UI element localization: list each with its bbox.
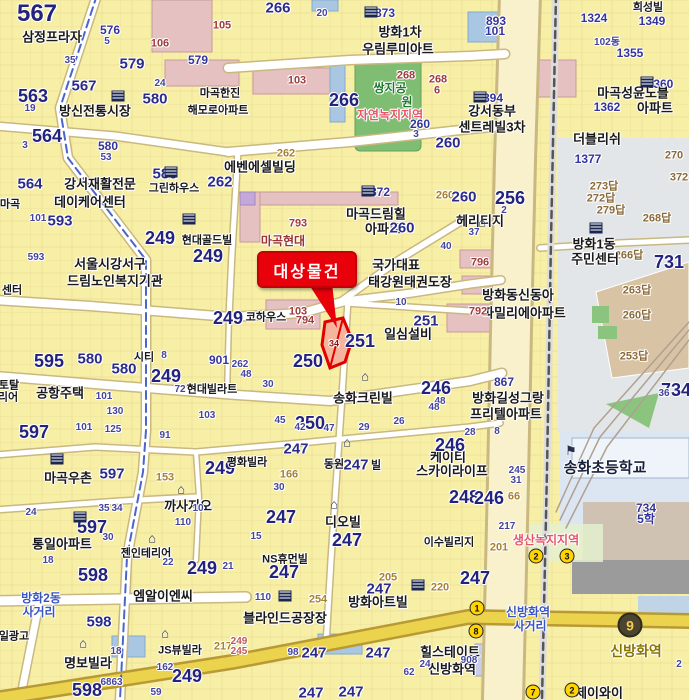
map-label: 792 xyxy=(469,307,487,318)
map-label: 동원 xyxy=(324,460,344,471)
map-label: 867 xyxy=(494,376,514,388)
map-label: 신방화역 xyxy=(506,606,550,618)
map-label: 130 xyxy=(107,407,124,417)
map-label: 센터 xyxy=(2,286,22,297)
subway-exit-badge: 1 xyxy=(470,601,485,616)
map-label: 방화동신동아 xyxy=(482,289,554,302)
map-label: 220 xyxy=(431,583,449,594)
map-label: 246 xyxy=(435,436,465,454)
map-label: 37 xyxy=(468,228,479,238)
map-label: 국가대표 xyxy=(372,259,420,272)
map-label: 260답 xyxy=(623,311,651,322)
map-label: 593 xyxy=(28,253,45,263)
map-canvas[interactable]: 대상물건 9 567삼정프라자5765351061055795795675631… xyxy=(0,0,689,700)
map-label: 송화초등학교 xyxy=(564,461,647,476)
map-label: 98 xyxy=(287,648,298,658)
map-label: 598 xyxy=(78,566,108,584)
map-label: 마곡성윤노블 xyxy=(597,87,669,100)
building-icon xyxy=(412,580,425,591)
map-label: 통일아파트 xyxy=(32,538,92,551)
map-label: 260 xyxy=(389,221,414,236)
map-label: 5 xyxy=(104,37,110,47)
map-label: 101 xyxy=(485,25,505,37)
map-label: 스카이라이프 xyxy=(416,465,488,478)
subway-exit-badge: 3 xyxy=(560,549,575,564)
map-label: 삼정프라자 xyxy=(22,31,82,44)
map-label: 598 xyxy=(72,681,102,699)
map-label: 48 xyxy=(240,370,251,380)
subway-exit-badge: 2 xyxy=(565,683,580,698)
map-label: 110 xyxy=(255,593,271,603)
map-label: 파밀리에아파트 xyxy=(482,307,566,320)
map-label: 34 xyxy=(111,504,122,514)
map-label: 디오빌 xyxy=(325,516,361,529)
map-label: 262 xyxy=(207,175,232,190)
map-label: 송화크린빌 xyxy=(333,392,393,405)
map-label: 42 xyxy=(294,423,305,433)
map-label: 796 xyxy=(471,258,489,269)
map-label: 태강원태권도장 xyxy=(368,276,452,289)
map-label: 34 xyxy=(329,340,339,349)
map-label: 10 xyxy=(395,298,406,308)
map-label: 268답 xyxy=(643,214,671,225)
map-label: 45 xyxy=(274,416,285,426)
map-label: 서울시강서구 xyxy=(74,258,146,271)
map-label: 1349 xyxy=(639,15,666,27)
map-label: 247 xyxy=(269,563,299,581)
building-icon xyxy=(51,454,64,465)
map-label: 프리텔아파트 xyxy=(470,408,542,421)
map-label: 48 xyxy=(428,403,439,413)
map-label: 제이와이 xyxy=(575,687,623,700)
map-label: 코하우스 xyxy=(246,313,286,324)
map-label: 토탈 xyxy=(0,381,19,392)
building-icon xyxy=(165,167,178,178)
subway-exit-badge: 7 xyxy=(526,685,541,700)
map-label: 103 xyxy=(199,411,216,421)
map-label: 597 xyxy=(19,423,49,441)
map-label: 강서동부 xyxy=(468,105,516,118)
map-label: 247 xyxy=(343,458,368,473)
map-label: 30 xyxy=(102,533,113,543)
map-label: 251 xyxy=(345,332,375,350)
map-label: 21 xyxy=(222,562,233,572)
map-label: 247 xyxy=(365,646,390,661)
map-label: 593 xyxy=(47,214,72,229)
map-label: 8 xyxy=(494,427,500,437)
map-label: 3 xyxy=(22,141,28,151)
map-label: 아파트 xyxy=(637,102,673,115)
map-label: 원 xyxy=(401,96,412,108)
map-label: 24 xyxy=(154,79,165,89)
map-label: 247 xyxy=(460,569,490,587)
map-label: 249 xyxy=(145,229,175,247)
map-label: 마곡우촌 xyxy=(44,472,92,485)
map-label: 251 xyxy=(413,314,438,329)
house-icon: ⌂ xyxy=(148,531,156,546)
map-label: 10 xyxy=(192,504,203,514)
map-label: 사거리 xyxy=(513,620,546,632)
map-label: 해모로아파트 xyxy=(188,106,249,117)
map-label: 249 xyxy=(187,559,217,577)
map-label: 리어 xyxy=(0,393,18,404)
map-label: 30 xyxy=(262,380,273,390)
map-label: 793 xyxy=(289,219,307,230)
map-label: 272답 xyxy=(587,194,615,205)
map-label: 현대골드빌 xyxy=(182,236,233,247)
map-label: 강서재활전문 xyxy=(64,178,136,191)
map-label: 246 xyxy=(474,489,504,507)
map-label: 26 xyxy=(393,417,404,427)
house-icon: ⌂ xyxy=(330,497,338,512)
map-label: 15 xyxy=(250,532,261,542)
map-label: 106 xyxy=(151,39,169,50)
map-label: 평화빌라 xyxy=(227,458,267,469)
map-label: JS뷰빌라 xyxy=(158,646,202,657)
map-label: 사거리 xyxy=(22,606,55,618)
map-label: 8 xyxy=(161,351,167,361)
map-label: 245 xyxy=(231,647,248,657)
map-label: 방화길성그랑 xyxy=(472,392,544,405)
map-label: 217 xyxy=(499,522,516,532)
building-icon xyxy=(590,223,603,234)
house-icon: ⌂ xyxy=(361,369,369,384)
map-label: 쌍지공 xyxy=(373,82,406,94)
map-label: 254 xyxy=(309,595,327,606)
building-icon xyxy=(183,214,196,225)
map-label: 372 xyxy=(670,173,688,184)
map-label: 일광고 xyxy=(0,632,29,643)
map-label: 873 xyxy=(375,7,395,19)
map-label: 우림루미아트 xyxy=(362,43,434,56)
map-label: 68 xyxy=(100,678,111,688)
map-label: 580 xyxy=(77,352,102,367)
map-label: 47 xyxy=(323,424,334,434)
map-label: 266 xyxy=(265,1,290,16)
map-labels-layer: 567삼정프라자5765351061055795795675631924580방… xyxy=(0,0,689,700)
map-label: 31 xyxy=(510,476,521,486)
map-label: 2 xyxy=(676,660,682,670)
map-label: 567 xyxy=(71,79,96,94)
map-label: 901 xyxy=(209,354,229,366)
map-label: 247 xyxy=(332,531,362,549)
map-label: 268 xyxy=(397,71,415,82)
house-icon: ⌂ xyxy=(161,626,169,641)
school-flag-icon: ⚑ xyxy=(565,443,577,459)
map-label: 데이케어센터 xyxy=(54,196,126,209)
map-label: 엠알이엔씨 xyxy=(133,590,193,603)
subway-exit-badge: 8 xyxy=(469,624,484,639)
map-label: 29 xyxy=(358,423,369,433)
house-icon: ⌂ xyxy=(177,482,185,497)
map-label: 6 xyxy=(434,86,440,97)
map-label: 1377 xyxy=(575,153,602,165)
map-label: 101 xyxy=(96,392,113,402)
map-label: 794 xyxy=(296,316,314,327)
map-label: 드림노인복지기관 xyxy=(67,275,163,288)
map-label: 103 xyxy=(288,76,306,87)
map-label: 110 xyxy=(175,518,191,528)
map-label: 28 xyxy=(464,428,475,438)
map-label: 생산녹지지역 xyxy=(513,534,579,546)
map-label: 731 xyxy=(654,253,684,271)
map-label: 580 xyxy=(111,362,136,377)
map-label: 598 xyxy=(86,615,111,630)
map-label: 희성빌 xyxy=(633,3,663,14)
map-label: 246 xyxy=(421,379,451,397)
building-icon xyxy=(474,92,487,103)
map-label: 방화1동 xyxy=(572,238,615,251)
map-label: 블라인드공장장 xyxy=(243,612,327,625)
map-label: 2 xyxy=(501,206,507,216)
map-label: 249 xyxy=(151,367,181,385)
map-label: 방신전통시장 xyxy=(59,105,131,118)
map-label: 249 xyxy=(172,667,202,685)
map-label: 센트레빌3차 xyxy=(458,121,525,134)
map-label: 35 xyxy=(64,56,75,66)
map-label: 580 xyxy=(98,140,118,152)
map-label: 53 xyxy=(100,153,111,163)
house-icon: ⌂ xyxy=(343,435,351,450)
map-label: 마곡현대 xyxy=(261,235,305,247)
map-label: 19 xyxy=(24,104,35,114)
map-label: 59 xyxy=(150,688,161,698)
map-label: 270 xyxy=(665,151,683,162)
map-label: 더블리쉬 xyxy=(573,133,621,146)
map-label: 576 xyxy=(100,24,120,36)
map-label: 256 xyxy=(495,189,525,207)
map-label: 그린하우스 xyxy=(149,184,200,195)
map-label: 273답 xyxy=(590,182,618,193)
map-label: 24 xyxy=(25,508,36,518)
map-label: 263답 xyxy=(623,286,651,297)
map-label: 마곡 xyxy=(0,200,20,211)
building-icon xyxy=(279,591,292,602)
map-label: 260 xyxy=(435,136,460,151)
map-label: 101 xyxy=(76,423,93,433)
map-label: 91 xyxy=(159,431,170,441)
map-label: 201 xyxy=(490,543,508,554)
map-label: 공항주택 xyxy=(36,387,84,400)
map-label: 567 xyxy=(17,2,57,26)
map-label: 40 xyxy=(440,242,451,252)
station-name: 신방화역 xyxy=(610,644,662,658)
map-label: 250 xyxy=(293,352,323,370)
map-label: 253답 xyxy=(620,352,648,363)
map-label: 564 xyxy=(32,127,62,145)
map-label: 방화2동 xyxy=(21,592,61,604)
map-label: 1324 xyxy=(581,12,608,24)
map-label: 3 xyxy=(413,130,419,140)
map-label: 247 xyxy=(266,508,296,526)
map-label: 597 xyxy=(99,467,124,482)
map-label: 에벤에셀빌딩 xyxy=(224,161,296,174)
map-label: 20 xyxy=(316,9,327,19)
subway-exit-badge: 2 xyxy=(529,549,544,564)
map-label: 시티 xyxy=(134,353,154,364)
map-label: 166 xyxy=(280,470,298,481)
map-label: 153 xyxy=(156,473,174,484)
building-icon xyxy=(365,7,378,18)
map-label: 249 xyxy=(213,309,243,327)
building-icon xyxy=(641,77,654,88)
map-label: 101 xyxy=(30,214,47,224)
map-label: 279답 xyxy=(597,206,625,217)
building-icon xyxy=(362,186,375,197)
map-label: 266 xyxy=(329,91,359,109)
map-label: 18 xyxy=(110,647,121,657)
map-label: 빌 xyxy=(371,461,381,472)
map-label: 63 xyxy=(111,678,122,688)
map-label: 까사지오 xyxy=(164,500,212,513)
map-label: 방화1차 xyxy=(378,26,421,39)
map-label: 62 xyxy=(403,668,414,678)
map-label: 162 xyxy=(157,663,174,673)
map-label: 217 xyxy=(214,642,232,653)
map-label: 1355 xyxy=(617,47,644,59)
map-label: 595 xyxy=(34,352,64,370)
building-icon xyxy=(112,91,125,102)
map-label: 247 xyxy=(338,685,363,700)
map-label: 247 xyxy=(298,686,323,700)
map-label: 방화아트빌 xyxy=(348,596,408,609)
map-label: 1362 xyxy=(594,101,621,113)
map-label: 908 xyxy=(461,656,478,666)
map-label: 579 xyxy=(119,57,144,72)
map-label: 125 xyxy=(105,425,122,435)
map-label: 260 xyxy=(451,190,476,205)
map-label: 35 xyxy=(98,504,109,514)
house-icon: ⌂ xyxy=(478,215,486,230)
map-label: 247 xyxy=(283,442,308,457)
map-label: 현대빌라트 xyxy=(187,385,238,396)
map-label: 30 xyxy=(273,483,284,493)
building-icon xyxy=(74,512,87,523)
map-label: 명보빌라 xyxy=(64,657,112,670)
map-label: 주민센터 xyxy=(571,253,619,266)
map-label: 5학 xyxy=(637,513,655,525)
map-label: 247 xyxy=(301,646,326,661)
map-label: 36 xyxy=(658,389,669,399)
map-label: 580 xyxy=(142,92,167,107)
map-label: 262 xyxy=(277,149,295,160)
map-label: 이수빌리지 xyxy=(424,538,475,549)
map-label: 72 xyxy=(174,385,185,395)
map-label: 249 xyxy=(193,247,223,265)
map-label: 마곡한진 xyxy=(200,89,240,100)
house-icon: ⌂ xyxy=(79,636,87,651)
map-label: 18 xyxy=(42,556,53,566)
map-label: 564 xyxy=(17,177,42,192)
map-label: 66 xyxy=(508,492,520,503)
map-label: 22 xyxy=(162,558,173,568)
map-label: 105 xyxy=(213,21,231,32)
map-label: 579 xyxy=(188,54,208,66)
